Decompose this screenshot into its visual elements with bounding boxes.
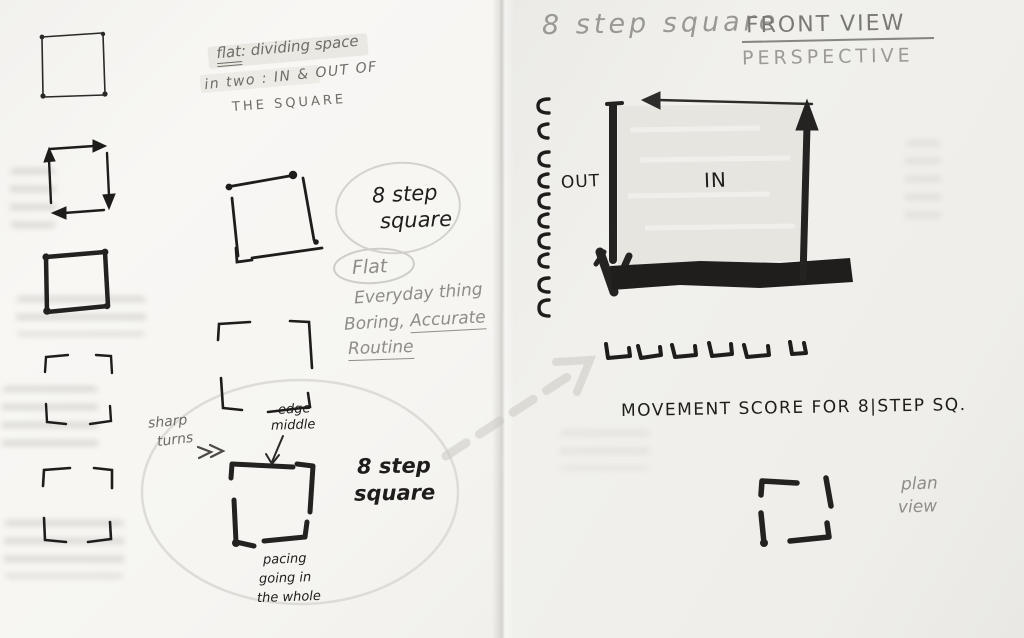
sharp-turn-note-line1: sharp: [147, 412, 188, 431]
paper-smudge: [16, 296, 146, 336]
front-view-label: FRONT VIEW: [746, 11, 906, 39]
paper-smudge: [560, 430, 650, 470]
pacing-note-line2: going in: [259, 570, 312, 587]
quality-flat: Flat: [351, 255, 387, 279]
bold-step-square-line2: square: [354, 480, 436, 505]
quality-boring: Boring,: [344, 312, 406, 335]
in-label: IN: [704, 168, 728, 193]
quality-routine: Routine: [348, 337, 414, 359]
paper-smudge: [2, 386, 98, 452]
pacing-note-line1: pacing: [263, 551, 307, 568]
step-square-label-line2: square: [380, 207, 453, 233]
plan-view-note-line2: view: [898, 496, 938, 517]
right-page-paper: [500, 0, 1024, 638]
paper-smudge: [10, 168, 56, 228]
right-page-title: 8 step square: [542, 6, 780, 41]
perspective-label: PERSPECTIVE: [742, 45, 914, 70]
pacing-note-line3: the whole: [257, 589, 321, 606]
definition-term: flat: [215, 42, 242, 67]
edge-middle-note-line2: middle: [271, 417, 316, 434]
sketchbook-spread: flat: dividing space in two : IN & OUT O…: [0, 0, 1024, 638]
plan-view-note-line1: plan: [901, 473, 938, 494]
page-gutter-fold: [492, 0, 514, 638]
edge-middle-note-line1: edge: [278, 401, 311, 418]
step-square-label-line1: 8 step: [371, 180, 438, 207]
quality-accurate: Accurate: [410, 307, 487, 333]
paper-smudge: [4, 520, 124, 578]
out-label: OUT: [561, 171, 601, 193]
bold-step-square-line1: 8 step: [357, 453, 431, 478]
paper-smudge: [905, 140, 941, 220]
